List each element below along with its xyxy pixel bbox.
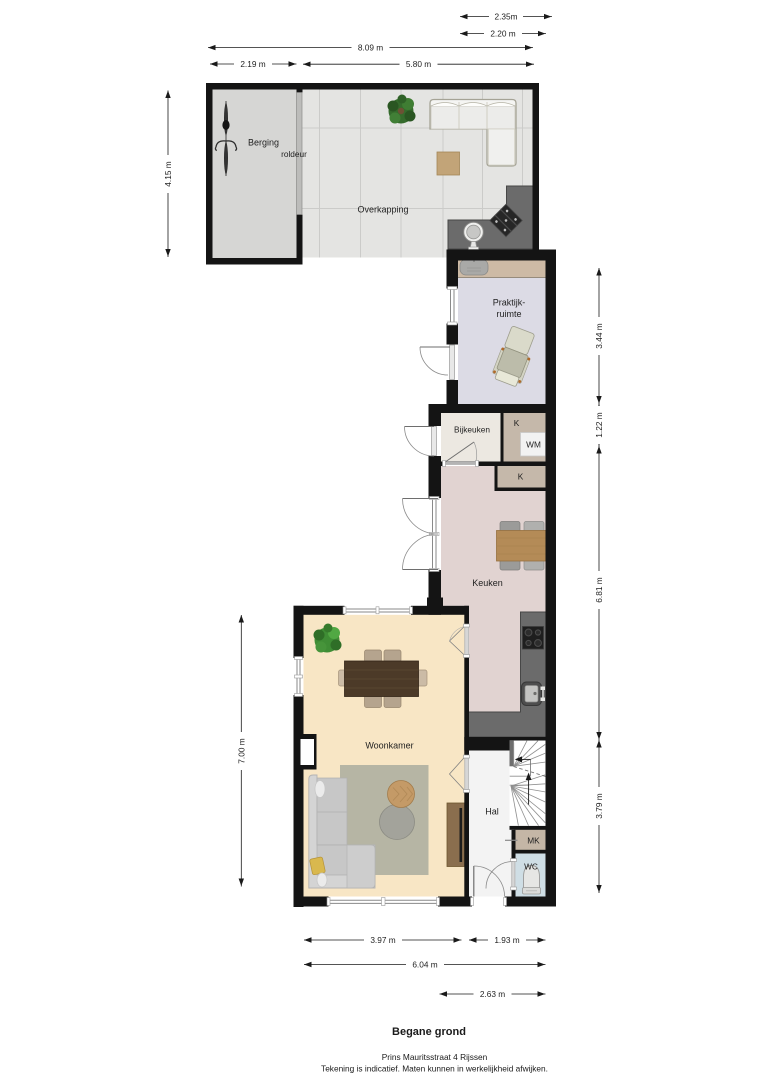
svg-text:2.35m: 2.35m xyxy=(494,12,517,22)
svg-text:6.81 m: 6.81 m xyxy=(594,577,604,602)
svg-text:2.19 m: 2.19 m xyxy=(240,59,265,69)
svg-text:roldeur: roldeur xyxy=(281,149,307,159)
svg-text:WM: WM xyxy=(526,440,541,450)
svg-text:WC: WC xyxy=(524,862,538,872)
svg-text:3.79 m: 3.79 m xyxy=(594,793,604,818)
svg-text:K: K xyxy=(518,472,524,482)
svg-text:Overkapping: Overkapping xyxy=(357,205,408,215)
svg-text:Tekening is indicatief. Maten: Tekening is indicatief. Maten kunnen in … xyxy=(321,1064,548,1074)
svg-text:Berging: Berging xyxy=(248,138,279,148)
svg-text:Bijkeuken: Bijkeuken xyxy=(454,425,490,435)
svg-text:3.97 m: 3.97 m xyxy=(370,935,395,945)
svg-text:1.22 m: 1.22 m xyxy=(594,412,604,437)
svg-text:7.00 m: 7.00 m xyxy=(236,738,246,763)
svg-text:1.93 m: 1.93 m xyxy=(494,935,519,945)
svg-text:K: K xyxy=(514,418,520,428)
svg-text:MK: MK xyxy=(527,836,540,846)
svg-text:4.15 m: 4.15 m xyxy=(163,161,173,186)
svg-text:Hal: Hal xyxy=(485,807,499,817)
svg-text:8.09 m: 8.09 m xyxy=(358,43,383,53)
svg-text:3.44 m: 3.44 m xyxy=(594,323,604,348)
svg-text:Prins Mauritsstraat 4 Rijssen: Prins Mauritsstraat 4 Rijssen xyxy=(382,1052,488,1062)
svg-text:2.63 m: 2.63 m xyxy=(480,989,505,999)
svg-text:6.04 m: 6.04 m xyxy=(412,960,437,970)
svg-text:Keuken: Keuken xyxy=(472,578,503,588)
svg-text:2.20 m: 2.20 m xyxy=(490,29,515,39)
svg-text:Begane grond: Begane grond xyxy=(392,1026,466,1038)
svg-text:ruimte: ruimte xyxy=(496,309,521,319)
svg-text:Praktijk-: Praktijk- xyxy=(493,298,526,308)
svg-text:Woonkamer: Woonkamer xyxy=(365,741,413,751)
svg-text:5.80 m: 5.80 m xyxy=(406,59,431,69)
